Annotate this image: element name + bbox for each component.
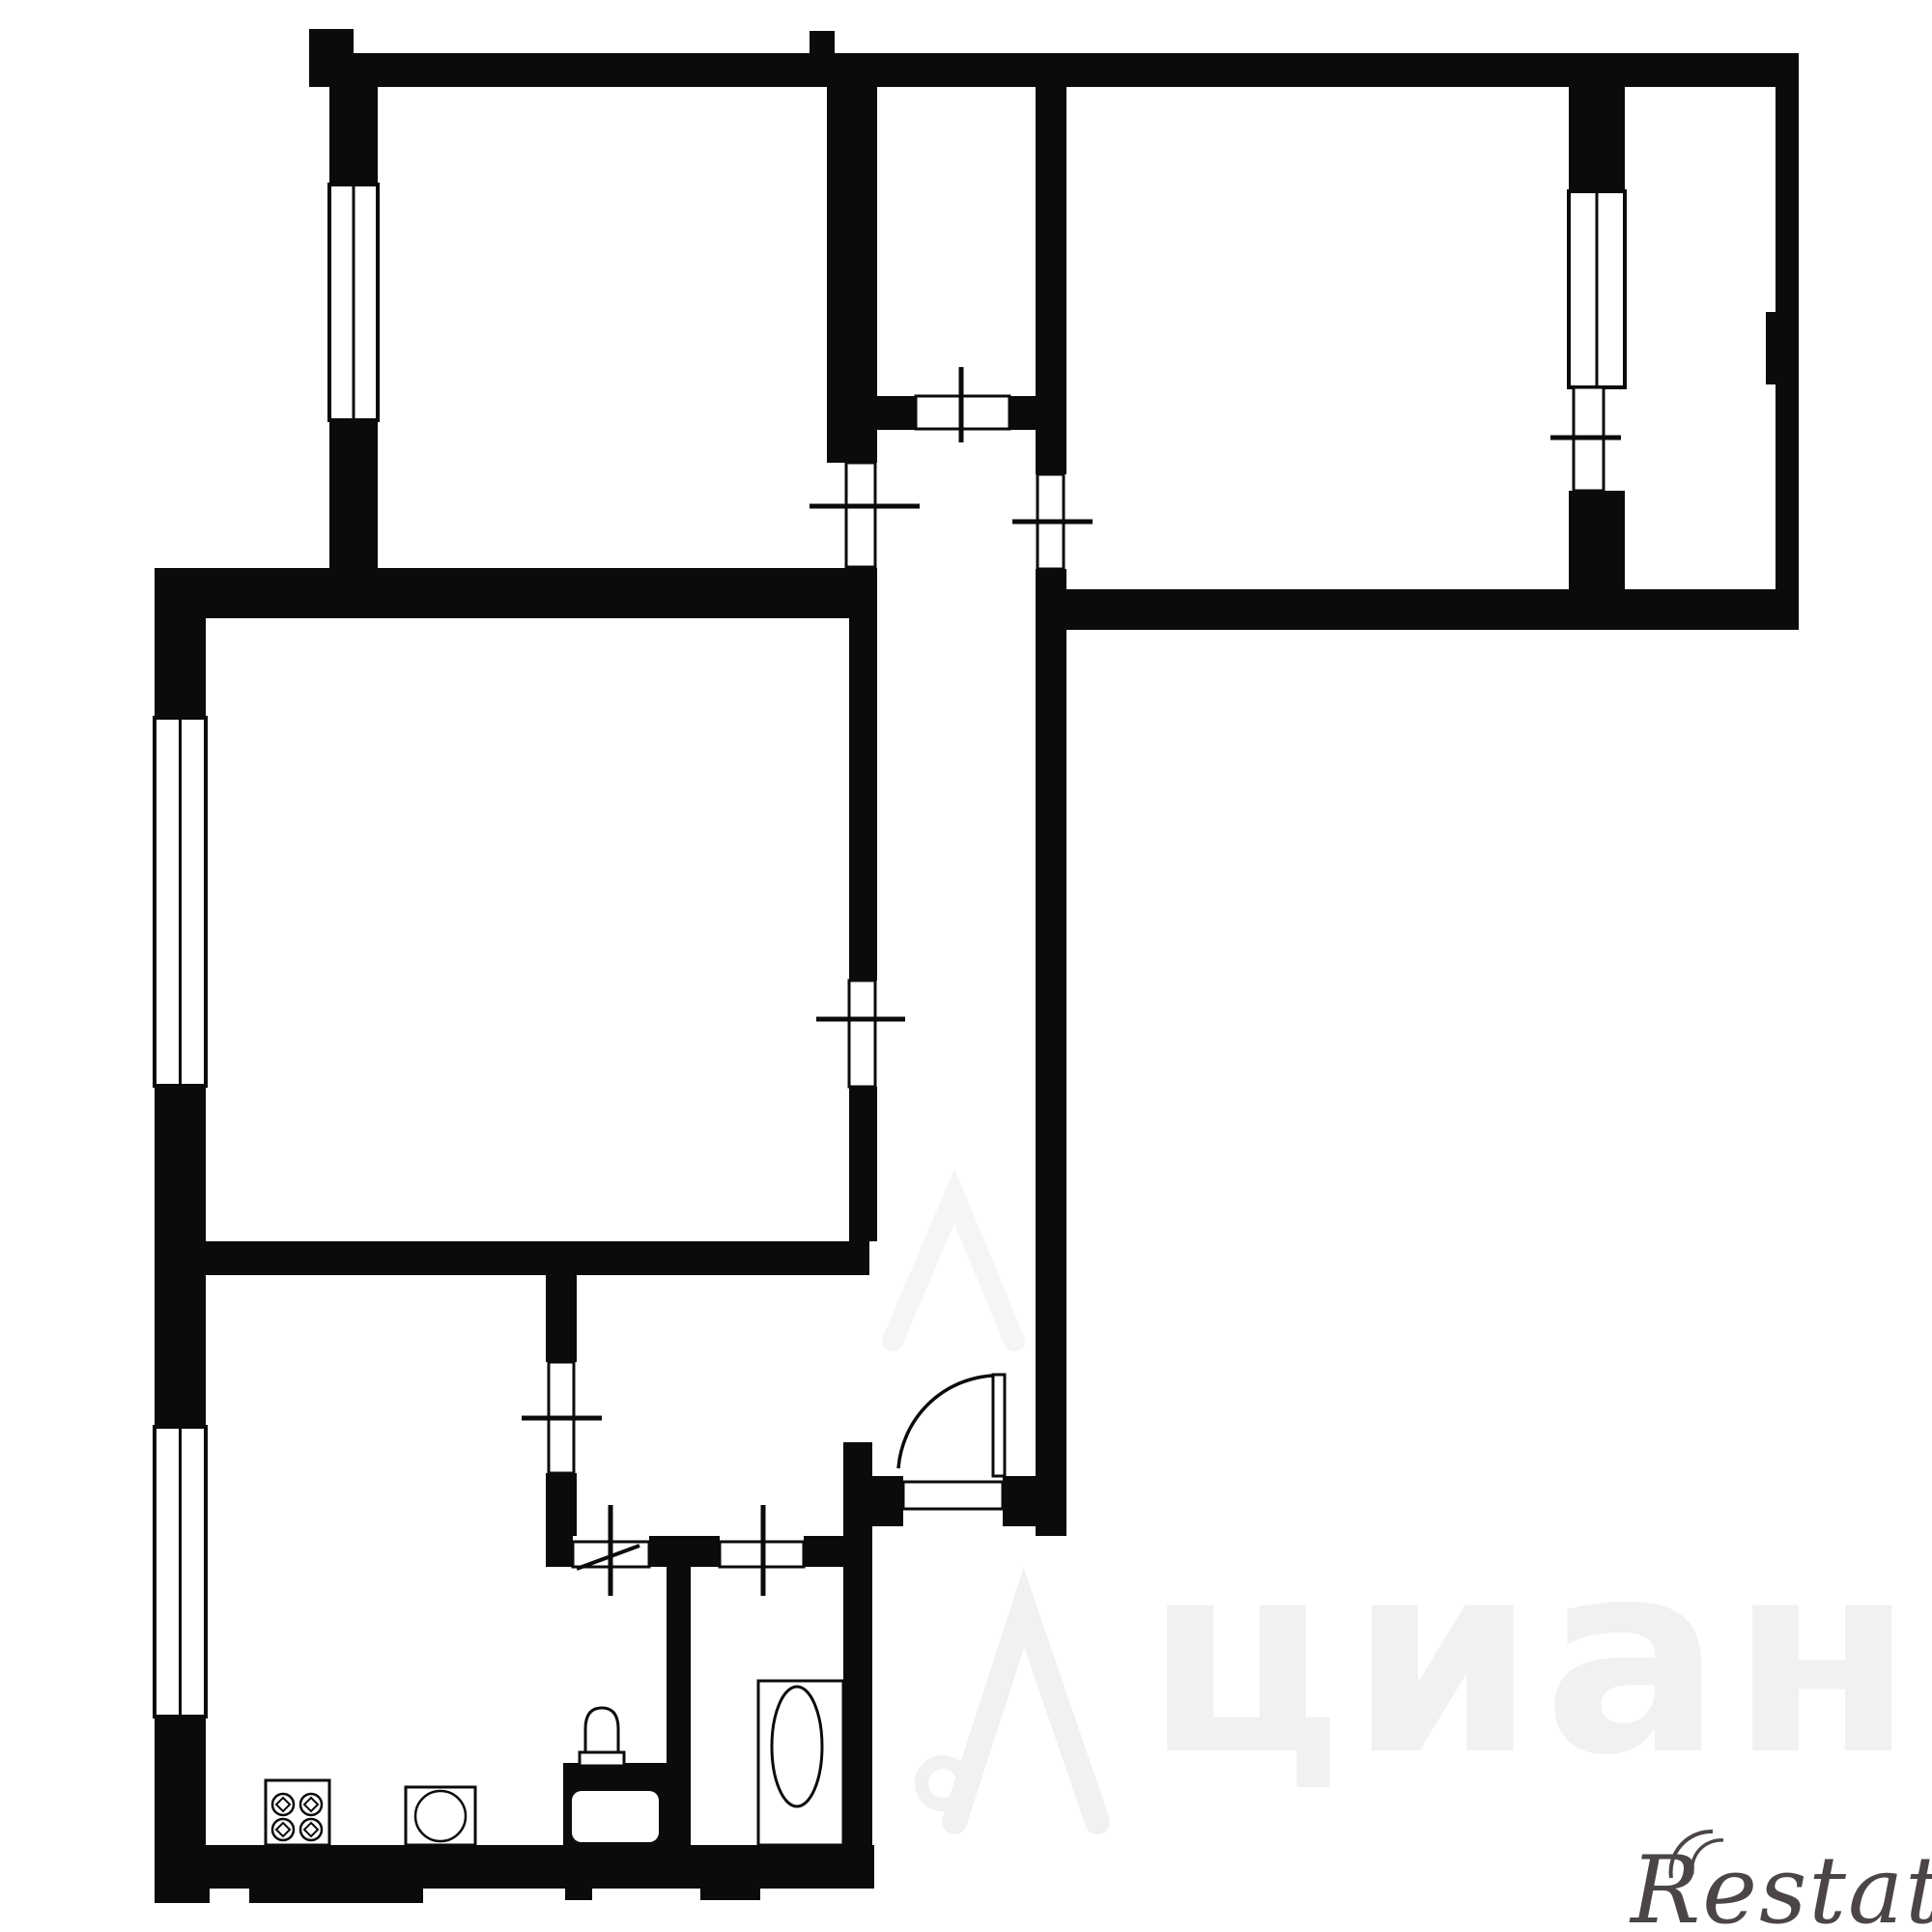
doors-layer — [549, 387, 1604, 1567]
wet-rooms-top-wall-left — [546, 1536, 573, 1567]
room1-room2-divider-wall — [155, 568, 877, 618]
balcony-block-wall-upper — [1569, 87, 1625, 191]
door-room1 — [846, 463, 875, 567]
wc-niche — [572, 1791, 659, 1842]
right-outer-wall — [1776, 53, 1799, 630]
closet-bottom-wall-right — [1009, 396, 1036, 430]
hall-right-wall-lower — [1036, 569, 1066, 1536]
bottom-wall-tab-3 — [565, 1889, 592, 1900]
top-wall-pier-mid — [810, 31, 835, 53]
kitchen-sink-bowl — [415, 1791, 466, 1841]
wc-toilet-base — [580, 1752, 624, 1766]
wc-bath-partition-wall — [667, 1567, 691, 1864]
bathtub-basin — [772, 1687, 822, 1806]
closet-bottom-wall-left — [877, 396, 916, 430]
watermark-cian-logo-roof — [954, 1607, 1097, 1822]
bottom-wall-tab-1 — [155, 1889, 210, 1903]
floor-plan-page: циан Restate — [0, 0, 1932, 1932]
watermark-cian-logo-roof-faint — [893, 1196, 1014, 1341]
hall-left-wall-upper — [849, 618, 877, 980]
room1-left-wall-lower — [329, 420, 378, 570]
right-wall-notch — [1766, 312, 1776, 384]
wet-rooms-top-wall-right — [804, 1536, 869, 1567]
kitchen-right-wall-upper — [546, 1275, 577, 1362]
watermark-restate-text: Restate — [1629, 1836, 1932, 1932]
hall-left-wall-lower — [843, 1442, 872, 1864]
balcony-block-wall-lower — [1569, 491, 1625, 589]
entrance-wall-right — [1003, 1476, 1036, 1526]
bottom-wall-tab-4 — [700, 1889, 760, 1900]
fixtures-layer — [266, 1681, 843, 1845]
bottom-outer-wall — [155, 1845, 874, 1889]
hall-left-wall-mid — [849, 1087, 877, 1241]
kitchen-right-wall-lower — [546, 1473, 577, 1536]
top-wall-pier-left — [309, 29, 354, 53]
room1-left-wall-upper — [329, 87, 378, 185]
entrance-door-swing — [898, 1376, 993, 1468]
hall-right-wall-upper — [1036, 87, 1066, 474]
bottom-wall-tab-2 — [249, 1889, 423, 1903]
watermark-cian-text: циан — [1145, 1504, 1921, 1813]
door-room2 — [849, 980, 875, 1087]
left-outer-wall-lower — [155, 1717, 206, 1864]
opening-marks-layer — [522, 367, 1621, 1596]
room1-right-wall-upper — [827, 87, 877, 463]
entrance-wall-left — [872, 1476, 903, 1526]
watermark-cian-logo-dot — [922, 1762, 964, 1804]
left-outer-wall-upper — [155, 570, 206, 718]
room3-bottom-wall — [1036, 589, 1799, 630]
room2-bottom-wall — [155, 1241, 869, 1275]
wet-rooms-top-wall-mid — [649, 1536, 720, 1567]
entrance-door-leaf — [993, 1375, 1005, 1476]
top-outer-wall — [309, 53, 1799, 87]
apartment-floor-plan: циан Restate — [0, 0, 1932, 1932]
entrance-threshold — [903, 1482, 1003, 1509]
wc-toilet-bowl — [585, 1708, 618, 1754]
watermark-restate-logo: Restate — [1629, 1832, 1932, 1932]
